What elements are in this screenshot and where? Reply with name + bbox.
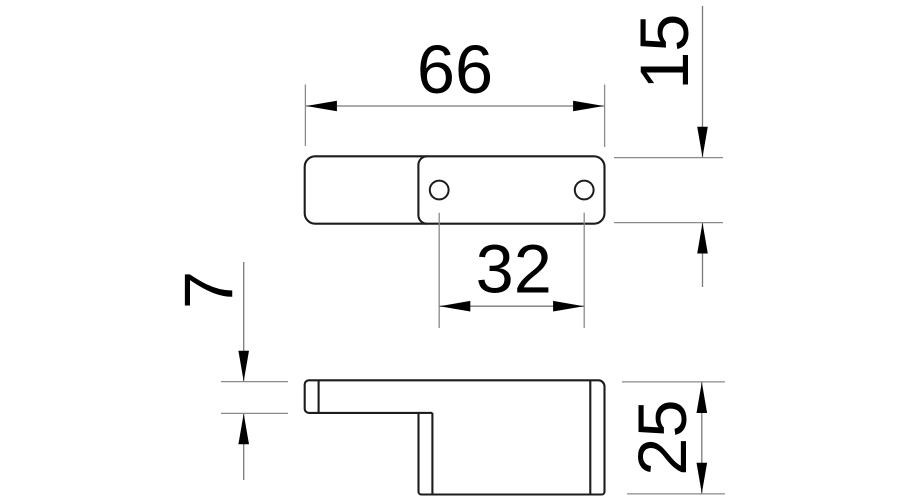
svg-text:32: 32 bbox=[476, 230, 552, 307]
svg-text:15: 15 bbox=[626, 14, 703, 90]
svg-text:25: 25 bbox=[624, 399, 701, 475]
svg-text:7: 7 bbox=[170, 271, 247, 309]
svg-text:66: 66 bbox=[417, 31, 493, 108]
